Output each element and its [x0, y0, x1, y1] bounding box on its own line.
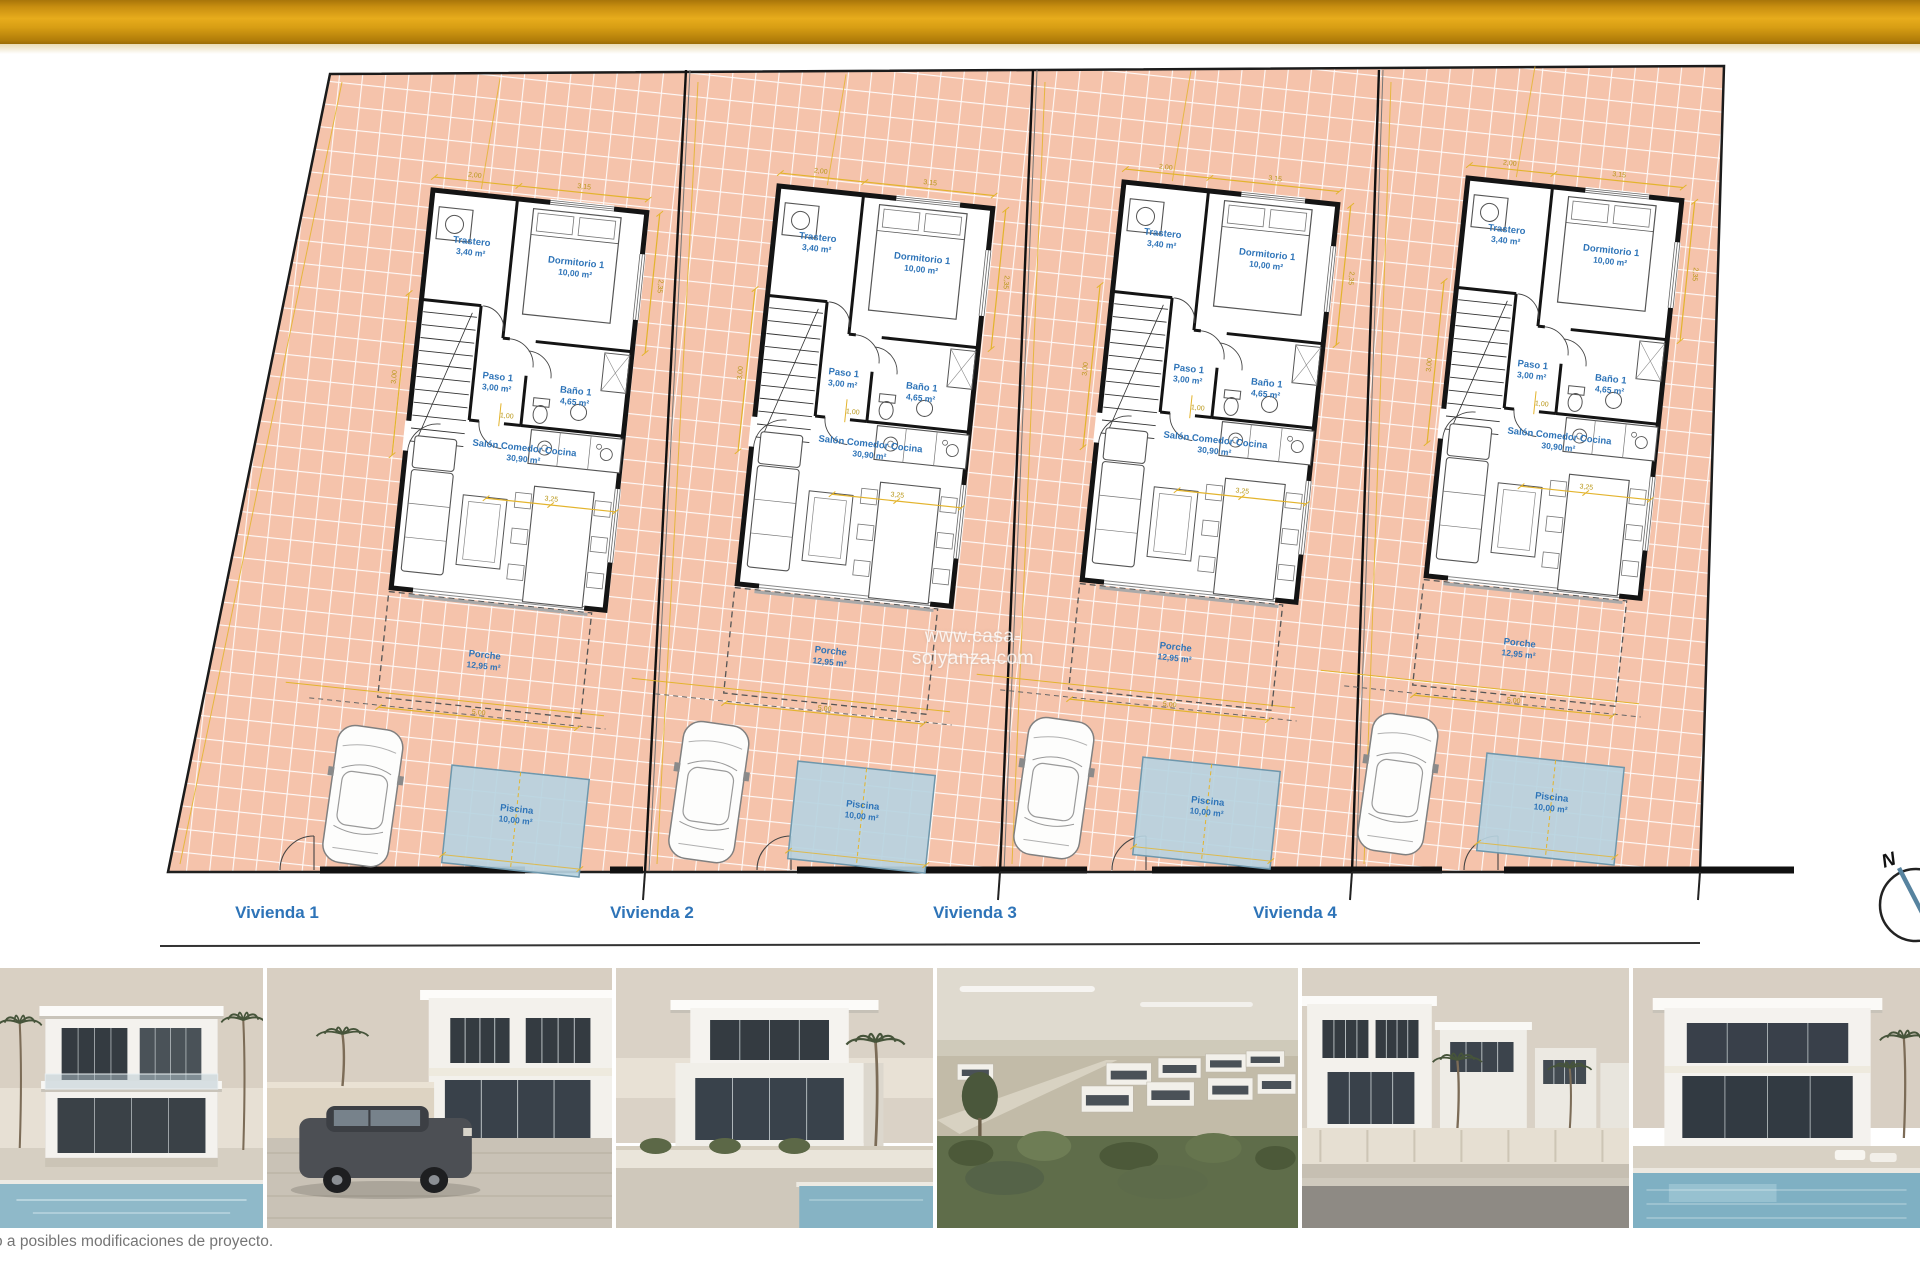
render-villa-with-car: [267, 968, 612, 1228]
svg-text:3,25: 3,25: [1235, 487, 1249, 495]
label-vivienda-3: Vivienda 3: [895, 903, 1055, 923]
svg-text:3,15: 3,15: [1268, 175, 1282, 183]
svg-text:3,25: 3,25: [890, 491, 904, 499]
room-label-piscina: Piscina10,00 m²: [1189, 794, 1225, 818]
svg-text:3,00: 3,00: [1082, 362, 1090, 376]
label-vivienda-2: Vivienda 2: [572, 903, 732, 923]
svg-text:2,00: 2,00: [468, 172, 482, 180]
svg-text:5,00: 5,00: [471, 709, 485, 717]
svg-text:3,25: 3,25: [1579, 483, 1593, 491]
svg-text:1,00: 1,00: [1191, 404, 1205, 412]
render-photo-strip: [0, 968, 1920, 1228]
label-vivienda-4: Vivienda 4: [1215, 903, 1375, 923]
svg-text:3,15: 3,15: [577, 183, 591, 191]
render-villa-terrace-pool: [1633, 968, 1920, 1228]
room-label-bano-1: Baño 14,65 m²: [558, 384, 592, 408]
footer-disclaimer: o a posibles modificaciones de proyecto.: [0, 1233, 273, 1251]
svg-text:2,00: 2,00: [1503, 160, 1517, 168]
svg-text:N: N: [1879, 848, 1900, 873]
render-street-row: [1302, 968, 1629, 1228]
svg-text:5,00: 5,00: [817, 705, 831, 713]
svg-text:2,35: 2,35: [1001, 275, 1009, 289]
render-villa-corner-palm: [616, 968, 933, 1228]
label-vivienda-1: Vivienda 1: [197, 903, 357, 923]
svg-text:2,35: 2,35: [1346, 271, 1354, 285]
room-label-paso-1: Paso 13,00 m²: [1172, 362, 1205, 386]
room-label-piscina: Piscina10,00 m²: [844, 798, 880, 822]
room-label-porche: Porche12,95 m²: [812, 644, 848, 668]
svg-text:1,00: 1,00: [500, 412, 514, 420]
svg-text:5,00: 5,00: [1506, 697, 1520, 705]
room-label-paso-1: Paso 13,00 m²: [827, 366, 860, 390]
room-label-porche: Porche12,95 m²: [1501, 636, 1537, 660]
room-label-piscina: Piscina10,00 m²: [498, 802, 534, 826]
room-label-piscina: Piscina10,00 m²: [1533, 790, 1569, 814]
watermark: www.casa-solyanza.com: [868, 626, 1078, 670]
room-label-bano-1: Baño 14,65 m²: [1249, 376, 1283, 400]
svg-text:1,00: 1,00: [1535, 400, 1549, 408]
room-label-paso-1: Paso 13,00 m²: [1516, 358, 1549, 382]
svg-text:3,15: 3,15: [1612, 171, 1626, 179]
render-aerial-development: [937, 968, 1298, 1228]
svg-text:3,00: 3,00: [1426, 358, 1434, 372]
svg-text:2,00: 2,00: [1159, 164, 1173, 172]
compass-north: N: [1879, 848, 1920, 941]
site-plan-drawing: 2,003,152,353,001,003,255,00Trastero3,40…: [0, 0, 1920, 960]
svg-text:3,00: 3,00: [391, 370, 399, 384]
room-label-bano-1: Baño 14,65 m²: [1593, 372, 1627, 396]
svg-text:2,35: 2,35: [655, 279, 663, 293]
room-label-porche: Porche12,95 m²: [1157, 640, 1193, 664]
header-bar: [0, 0, 1920, 44]
room-label-porche: Porche12,95 m²: [466, 648, 502, 672]
room-label-paso-1: Paso 13,00 m²: [481, 370, 514, 394]
svg-text:2,35: 2,35: [1690, 267, 1698, 281]
svg-text:5,00: 5,00: [1162, 701, 1176, 709]
room-label-bano-1: Baño 14,65 m²: [904, 380, 938, 404]
svg-text:1,00: 1,00: [846, 408, 860, 416]
svg-text:3,00: 3,00: [737, 366, 745, 380]
render-villa-front-pool: [0, 968, 263, 1228]
svg-text:3,15: 3,15: [923, 179, 937, 187]
header-shadow: [0, 44, 1920, 54]
svg-text:2,00: 2,00: [814, 168, 828, 176]
svg-text:3,25: 3,25: [544, 495, 558, 503]
